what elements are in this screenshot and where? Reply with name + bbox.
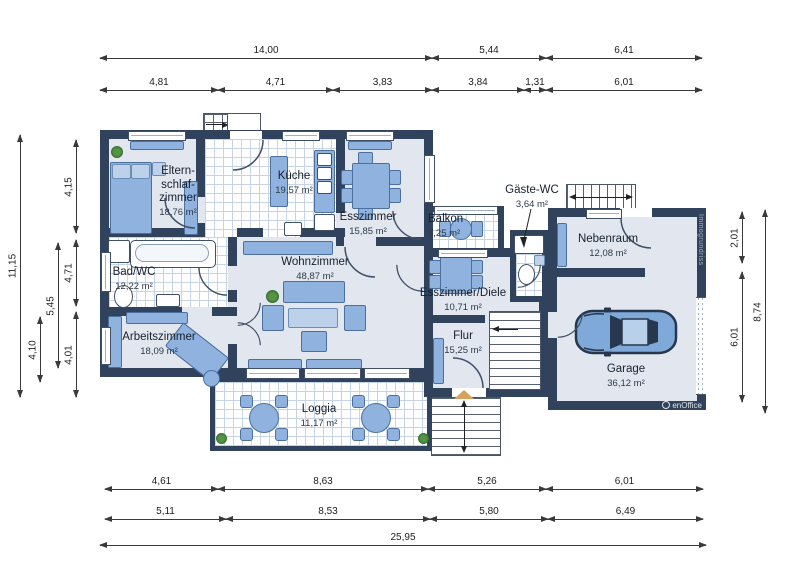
room-name: zimmer [140,192,216,206]
stairs-arrow [572,197,628,198]
interior-stairs [489,311,541,390]
dim-label: 5,11 [153,506,178,517]
bathtub-inner [135,244,209,262]
dim-label: 8,63 [310,476,335,487]
room-area: 18,09 m² [107,346,211,357]
floorplan-canvas: 14,00 5,44 6,41 4,81 4,71 3,83 3,84 1,31… [0,0,800,565]
dim-top2-1: 4,81 [100,90,218,91]
window [346,131,394,141]
dim-right-201: 2,01 [742,212,743,263]
room-name: Balkon [428,213,478,227]
window [282,131,320,141]
room-name: Garage [596,363,656,377]
dim-top2-6: 6,01 [546,90,702,91]
room-label-elternschlafzimmer: Eltern- schlaf- zimmer 18,76 m² [140,165,216,218]
door-opening [228,266,237,290]
room-area: 15,25 m² [436,345,490,356]
dim-label: 3,84 [465,77,490,88]
dim-label: 6,49 [613,506,638,517]
room-label-nebenraum: Nebenraum 12,08 m² [567,233,649,259]
plant-icon [266,290,279,303]
dim-bot1-1: 4,61 [105,489,218,490]
stairs-arrowhead [461,446,467,453]
chair [275,428,288,441]
dim-label: 1,31 [522,77,547,88]
logo-text: enOffice [672,401,702,410]
wall [237,228,263,237]
plant-icon [111,146,123,158]
stairs-arrow [496,329,518,330]
window [586,209,622,219]
window [438,249,488,258]
room-label-balkon: Balkon 9,25 m² [424,213,478,239]
stairs-arrowhead [461,400,467,407]
armchair [301,331,327,352]
armchair [262,305,284,331]
dim-label: 6,41 [611,45,636,56]
room-area: 15,85 m² [330,226,406,237]
dim-label: 25,95 [387,532,418,543]
radiator [348,141,392,150]
room-area: 18,76 m² [140,207,216,218]
dim-top1-2: 5,44 [432,58,546,59]
chair [471,260,483,274]
chair [429,260,441,274]
dim-left-401: 4,01 [76,312,77,397]
chair [389,188,401,203]
door-arc [557,312,583,338]
door-opening [344,237,376,246]
room-area: 19,57 m² [258,185,330,196]
room-name: Esszimmer/Diele [404,287,522,301]
window-door [364,368,410,379]
sideboard [243,241,333,255]
chair [240,395,253,408]
room-area: 12,22 m² [98,281,170,292]
dim-label: 8,74 [753,299,764,324]
dim-bot1-2: 8,63 [218,489,428,490]
dim-label: 5,80 [476,506,501,517]
shelf [126,312,188,324]
room-name: Wohnzimmer [260,256,370,270]
dim-top2-3: 3,83 [333,90,432,91]
door-arc [517,264,541,288]
door-opening [548,312,557,338]
utility-box [284,222,302,236]
door-arc [198,266,228,296]
coffee-table [288,308,338,328]
chair [387,428,400,441]
dim-bot2-3: 5,80 [430,519,548,520]
room-label-arbeitszimmer: Arbeitszimmer 18,09 m² [107,331,211,357]
dim-label: 4,61 [149,476,174,487]
desk-chair [203,370,220,387]
dim-label: 8,53 [315,506,340,517]
dim-left-415: 4,15 [76,140,77,233]
window [424,155,435,203]
garage-door [696,297,706,395]
appliance [317,153,332,166]
room-area: 48,87 m² [260,271,370,282]
wall [557,268,645,277]
room-name: Loggia [287,403,351,417]
plant-icon [216,433,227,444]
dim-label: 6,01 [730,324,741,349]
plant-icon [418,433,429,444]
dim-left-471: 4,71 [76,240,77,306]
dim-bot1-3: 5,26 [428,489,546,490]
dim-label: 11,15 [8,251,19,281]
room-name: schlaf- [140,179,216,193]
dim-label: 2,01 [730,225,741,250]
chair [358,152,373,164]
dim-bot1-4: 6,01 [546,489,703,490]
door-arc [452,357,484,389]
sofa [283,281,345,303]
logo-icon [662,401,670,409]
dim-bot-total: 25,95 [100,545,706,546]
stairs-arrowhead [492,326,499,332]
door-opening [230,131,262,139]
wall-watermark: Immogrundriss [697,214,704,274]
room-label-loggia: Loggia 11,17 m² [287,403,351,429]
stairs-arrow [464,402,465,450]
dim-top1-3: 6,41 [546,58,702,59]
dim-bot2-4: 6,49 [548,519,703,520]
chair [341,170,353,185]
chair [341,188,353,203]
chair [352,428,365,441]
room-name: Bad/WC [98,266,170,280]
stairs-arrowhead [569,194,576,200]
radiator [156,294,180,307]
room-name: Eltern- [140,165,216,179]
room-label-gaeste-wc: Gäste-WC 3,64 m² [500,184,564,210]
dim-bot2-2: 8,53 [226,519,430,520]
chair [240,428,253,441]
window [128,131,186,141]
dim-right-601: 6,01 [742,272,743,402]
car-icon [574,306,678,358]
dim-label: 4,81 [146,77,171,88]
dim-label: 6,01 [612,476,637,487]
room-label-wohnzimmer: Wohnzimmer 48,87 m² [260,256,370,282]
room-label-flur: Flur 15,25 m² [436,330,490,356]
chair [387,395,400,408]
dim-label: 4,01 [64,342,75,367]
dim-label: 5,45 [46,293,57,318]
room-label-garage: Garage 36,12 m² [596,363,656,389]
room-area: 9,25 m² [428,228,478,239]
dim-label: 4,71 [64,260,75,285]
door-opening [620,208,652,217]
room-area: 12,08 m² [567,248,649,259]
stairs-arrowhead [626,194,633,200]
window-door [246,368,300,379]
room-area: 36,12 m² [596,378,656,389]
room-name: Flur [436,330,490,344]
room-label-esszimmer-diele: Esszimmer/Diele 10,71 m² [404,287,522,313]
dim-label: 4,71 [263,77,288,88]
room-area: 10,71 m² [404,302,522,313]
dim-label: 4,15 [64,174,75,199]
dim-label: 3,83 [370,77,395,88]
window-door [304,368,361,379]
room-name: Arbeitszimmer [107,331,211,345]
chair [389,170,401,185]
dim-top2-2: 4,71 [218,90,333,91]
dim-label: 5,26 [474,476,499,487]
door-arc [237,322,261,346]
dim-left-545: 5,45 [58,243,59,368]
entrance-marker [454,390,474,399]
room-name: Nebenraum [567,233,649,247]
dim-top2-5: 1,31 [524,90,546,91]
window-glazing [557,223,567,267]
dim-top1-1: 14,00 [100,58,432,59]
armchair [344,305,366,331]
dim-left-outer: 11,15 [20,135,21,397]
logo-watermark: enOffice [640,400,702,410]
dim-label: 4,10 [28,337,39,362]
dim-bot2-1: 5,11 [105,519,226,520]
room-label-kueche: Küche 19,57 m² [258,170,330,196]
wall [433,315,485,323]
chair [352,395,365,408]
sink [108,240,130,263]
radiator [130,141,184,150]
dim-right-outer: 8,74 [765,210,766,413]
dining-table [352,163,390,209]
room-area: 11,17 m² [287,418,351,429]
dim-label: 14,00 [250,45,281,56]
dim-label: 5,44 [476,45,501,56]
pillow [112,164,131,179]
room-name: Gäste-WC [500,184,564,198]
room-label-esszimmer: Esszimmer 15,85 m² [330,211,406,237]
dim-top2-4: 3,84 [432,90,524,91]
door-arc [232,139,264,171]
dim-left-410: 4,10 [40,317,41,382]
gaeste-wc-pointer [516,208,538,252]
room-name: Küche [258,170,330,184]
dim-label: 6,01 [611,77,636,88]
room-name: Esszimmer [330,211,406,225]
room-label-bad-wc: Bad/WC 12,22 m² [98,266,170,292]
